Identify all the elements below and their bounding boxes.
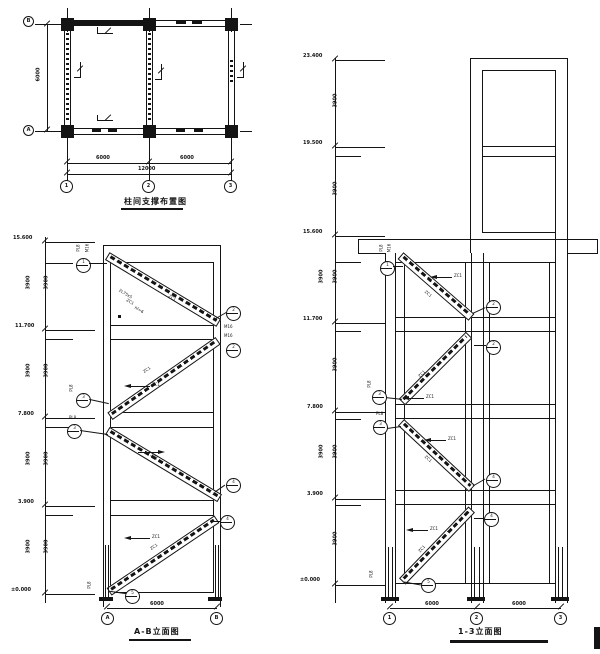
beam-line: [110, 412, 214, 413]
leader-line: [474, 345, 486, 346]
diagonal-brace: [398, 419, 475, 492]
column-section: [61, 125, 74, 138]
dim-text: 3900: [26, 364, 31, 378]
beam-line: [395, 404, 555, 405]
detail-callout: 2: [226, 343, 241, 358]
level-label: 11.700: [15, 324, 34, 329]
leader-label: ZC1: [454, 274, 462, 278]
anchor-line: [392, 547, 393, 597]
callout-line: [422, 585, 433, 586]
dim-text: 3900: [333, 358, 338, 372]
callout-num: 3: [374, 422, 387, 426]
beam-line: [395, 418, 555, 419]
brace-dash: [110, 255, 218, 321]
level-tick: [335, 236, 385, 237]
anchor-line: [105, 545, 106, 597]
dim-text: 6000: [512, 602, 526, 607]
anchor-line: [558, 547, 559, 597]
level-label: 3.900: [18, 500, 34, 505]
column-line: [549, 262, 550, 583]
column-line: [555, 70, 556, 232]
anchor-line: [479, 547, 480, 597]
column-line: [471, 253, 472, 603]
column-line: [555, 232, 556, 603]
detail-callout: 3: [76, 393, 91, 408]
node-note: ZC1: [126, 298, 135, 306]
base-plate: [99, 597, 113, 601]
level-tick: [335, 323, 385, 324]
callout-line: [126, 596, 137, 597]
beam-line: [110, 427, 214, 428]
level-tick: [45, 515, 73, 516]
leader-line: [212, 521, 220, 522]
anchor-line: [215, 545, 216, 597]
detail-callout: 5: [125, 589, 140, 604]
section-mark: [74, 77, 81, 78]
brace-texture: [230, 60, 233, 82]
level-tick: [45, 263, 73, 264]
callout-num: 2: [487, 302, 500, 306]
level-tick: [335, 156, 361, 157]
leader-label: ZC1: [430, 527, 438, 531]
level-label: ±0.000: [11, 588, 31, 593]
title-underline: [129, 639, 191, 641]
diagonal-brace: [107, 337, 220, 420]
brace-label: ZC1: [424, 290, 433, 298]
beam-line: [395, 317, 555, 318]
dim-text: 3900: [26, 540, 31, 554]
callout-num: 4: [485, 514, 498, 518]
leader-line: [89, 399, 109, 404]
detail-tag: PL8: [69, 416, 76, 420]
base-plate: [381, 597, 399, 601]
detail-tag: M16: [85, 244, 89, 253]
detail-tag: PL8: [70, 384, 74, 391]
callout-num: 5: [422, 580, 435, 584]
level-tick: [335, 262, 361, 263]
detail-callout: 4: [220, 515, 235, 530]
tick: [558, 603, 564, 609]
brace-label: ZC1: [143, 366, 152, 374]
grid-bubble: A: [101, 612, 114, 625]
detail-tag: PL8: [376, 412, 383, 416]
dim-text: 3900: [26, 452, 31, 466]
leader-line: [412, 530, 428, 531]
anchor-line: [388, 547, 389, 597]
callout-line: [381, 268, 392, 269]
column-section: [225, 18, 238, 31]
dim-text: 3900: [333, 445, 338, 459]
callout-line: [485, 519, 496, 520]
line: [156, 128, 225, 129]
line: [228, 31, 229, 125]
level-tick: [45, 330, 95, 331]
grid-label: A: [24, 128, 33, 133]
line: [64, 31, 65, 125]
beam-line: [110, 515, 214, 516]
grid-bubble: 1: [383, 612, 396, 625]
leader-label: ZC1: [448, 437, 456, 441]
level-label: ±0.000: [300, 578, 320, 583]
brace-dash: [402, 335, 467, 400]
level-label: 7.800: [18, 412, 34, 417]
callout-line: [487, 347, 498, 348]
detail-callout: 5: [421, 578, 436, 593]
detail-tag: PL8: [77, 244, 81, 251]
level-tick: [45, 594, 95, 595]
leader-label: ZC1: [426, 395, 434, 399]
callout-num: 2: [487, 342, 500, 346]
level-tick: [335, 505, 361, 506]
callout-line: [68, 431, 79, 432]
callout-line: [221, 522, 232, 523]
dim-line: [47, 24, 48, 131]
brace-dash: [110, 519, 214, 591]
leader-line: [393, 266, 403, 267]
column-section: [61, 18, 74, 31]
level-tick: [335, 147, 385, 148]
line: [70, 31, 71, 125]
grid-label: 2: [471, 616, 482, 621]
grid-bubble: 1: [60, 180, 73, 193]
base-plate: [208, 597, 222, 601]
line: [234, 31, 235, 125]
callout-line: [227, 485, 238, 486]
brace-dash: [110, 430, 219, 497]
beam-dash: [176, 21, 186, 24]
dim-text: 3900: [319, 270, 324, 284]
callout-line: [374, 427, 385, 428]
beam-line: [597, 239, 598, 253]
beam-line: [358, 239, 359, 253]
beam-line: [358, 239, 597, 240]
dim-text: 3900: [333, 94, 338, 108]
dim-line: [107, 608, 217, 609]
dim-text: 6000: [180, 156, 194, 161]
leader-line: [474, 518, 484, 519]
beam-line: [567, 253, 598, 254]
section-mark: [97, 27, 98, 33]
beam-dash: [176, 129, 185, 132]
anchor-line: [474, 547, 475, 597]
line: [156, 134, 225, 135]
column-line: [567, 58, 568, 253]
level-label: 23.400: [303, 54, 322, 59]
callout-line: [487, 307, 498, 308]
dim-text: 3900: [44, 452, 49, 466]
brace-dash: [403, 423, 472, 487]
leader-arrow: [158, 450, 165, 454]
node-note: hf=6: [134, 306, 144, 314]
dot: [118, 315, 121, 318]
grid-bubble: 3: [554, 612, 567, 625]
anchor-line: [562, 547, 563, 597]
detail-tag: M16: [224, 334, 233, 338]
section-mark: [243, 62, 244, 78]
level-tick: [335, 499, 385, 500]
leader-label: ZC1: [152, 535, 160, 539]
dim-text: 6000: [150, 602, 164, 607]
grid-label: 3: [555, 616, 566, 621]
brace-dash: [403, 510, 470, 580]
dim-text: 3900: [44, 364, 49, 378]
beam-dash: [194, 129, 203, 132]
column-line: [483, 253, 484, 603]
callout-num: 5: [126, 591, 139, 595]
elevation-title: 1-3立面图: [458, 628, 502, 636]
detail-tag: M16: [387, 244, 391, 253]
dim-text: 3900: [333, 270, 338, 284]
column-line: [470, 58, 471, 253]
leader-line: [216, 312, 227, 319]
callout-num: 2: [227, 308, 240, 312]
diagonal-brace: [399, 506, 475, 584]
level-tick: [335, 419, 361, 420]
brace-texture: [66, 33, 69, 123]
diagonal-brace: [399, 332, 473, 406]
leader-label: ZC1: [152, 383, 160, 387]
beam-line: [395, 331, 555, 332]
beam-line: [470, 58, 568, 59]
dim-line: [67, 174, 231, 175]
detail-callout: 2: [486, 340, 501, 355]
grid-label: 3: [225, 184, 236, 189]
dim-text: 6000: [36, 68, 41, 82]
level-tick: [45, 506, 95, 507]
elevation-title: A-B立面图: [134, 628, 180, 636]
title-underline: [450, 640, 548, 643]
detail-callout: 3: [372, 390, 387, 405]
base-plate: [551, 597, 569, 601]
plan-title: 柱间支撑布置图: [124, 198, 187, 206]
grid-label: 1: [384, 616, 395, 621]
line: [156, 26, 225, 27]
dim-text: 3900: [319, 445, 324, 459]
level-tick: [335, 331, 361, 332]
grid-label: B: [211, 616, 222, 621]
beam-dash: [192, 21, 202, 24]
level-label: 15.600: [13, 236, 32, 241]
beam-line: [482, 156, 556, 157]
column-section: [143, 125, 156, 138]
level-label: 19.500: [303, 141, 322, 146]
callout-num: 4: [221, 517, 234, 521]
level-label: 3.900: [307, 492, 323, 497]
drawing-sheet: 6000 6000 6000 12000 B A 1 2 3 柱间支撑布置图: [0, 0, 600, 654]
brace-texture: [148, 33, 151, 123]
column-line: [482, 70, 483, 232]
leader-line: [130, 386, 150, 387]
callout-line: [77, 265, 88, 266]
line: [156, 20, 225, 21]
beam: [74, 20, 143, 26]
level-tick: [335, 585, 385, 586]
dim-text: 3900: [333, 182, 338, 196]
detail-callout: 4: [486, 473, 501, 488]
detail-tag: PL8: [370, 570, 374, 577]
detail-tag: PL8: [380, 244, 384, 251]
leader-line: [138, 452, 158, 453]
callout-num: 3: [373, 392, 386, 396]
beam-line: [110, 500, 214, 501]
line: [152, 31, 153, 125]
grid-label: 1: [61, 184, 72, 189]
column-line: [395, 253, 396, 603]
leader-line: [130, 538, 150, 539]
beam-line: [110, 339, 214, 340]
grid-bubble: 3: [224, 180, 237, 193]
beam-line: [395, 504, 555, 505]
base-plate: [467, 597, 485, 601]
grid-bubble: 2: [142, 180, 155, 193]
column-line: [567, 253, 568, 603]
beam-line: [358, 253, 386, 254]
detail-callout: 4: [484, 512, 499, 527]
callout-line: [227, 350, 238, 351]
section-mark: [237, 77, 244, 78]
grid-bubble: A: [23, 125, 34, 136]
column-line: [103, 245, 104, 607]
section-mark: [161, 64, 162, 80]
brace-dash: [111, 340, 216, 415]
title-underline: [121, 208, 183, 210]
section-mark: [155, 79, 162, 80]
dim-text: 3900: [26, 276, 31, 290]
beam-line: [482, 70, 556, 71]
callout-line: [227, 313, 238, 314]
beam-dash: [108, 129, 117, 132]
section-mark: [80, 62, 81, 78]
dim-text: 6000: [96, 156, 110, 161]
dim-text: 3900: [44, 540, 49, 554]
grid-label: 2: [143, 184, 154, 189]
detail-tag: M16: [224, 325, 233, 329]
dim-text: 3900: [333, 532, 338, 546]
beam-line: [482, 232, 556, 233]
callout-num: 3: [77, 395, 90, 399]
column-line: [220, 245, 221, 607]
level-tick: [45, 339, 73, 340]
detail-callout: 4: [226, 478, 241, 493]
section-mark: [97, 115, 98, 121]
detail-tag: PL8: [88, 581, 92, 588]
callout-num: 3: [68, 426, 81, 430]
level-label: 15.600: [303, 230, 322, 235]
leader-line: [89, 263, 107, 264]
dim-text: 12000: [138, 167, 155, 172]
grid-label: B: [24, 19, 33, 24]
callout-num: 2: [227, 345, 240, 349]
brace-dash: [402, 256, 470, 316]
detail-callout: 2: [486, 300, 501, 315]
beam-dash: [92, 129, 101, 132]
anchor-line: [108, 545, 109, 597]
line: [146, 31, 147, 125]
detail-tag: PL8: [368, 380, 372, 387]
line: [35, 24, 61, 25]
grid-bubble: B: [210, 612, 223, 625]
dim-text: 3900: [44, 276, 49, 290]
level-label: 7.800: [307, 405, 323, 410]
beam-line: [395, 490, 555, 491]
brace-label: ZC1: [150, 543, 159, 551]
callout-num: 4: [487, 475, 500, 479]
grid-label: A: [102, 616, 113, 621]
line: [74, 134, 143, 135]
dim-text: 6000: [425, 602, 439, 607]
callout-line: [373, 397, 384, 398]
level-label: 11.700: [303, 317, 322, 322]
detail-callout: 1: [380, 261, 395, 276]
beam-line: [395, 262, 555, 263]
detail-callout: 2: [226, 306, 241, 321]
beam-line: [482, 146, 556, 147]
detail-callout: 3: [373, 420, 388, 435]
detail-callout: 1: [76, 258, 91, 273]
sheet-edge-mark: [594, 627, 600, 649]
grid-bubble: 2: [470, 612, 483, 625]
line: [240, 131, 252, 132]
beam-line: [110, 325, 214, 326]
level-tick: [335, 60, 385, 61]
dim-line: [67, 163, 231, 164]
leader-line: [430, 440, 446, 441]
line: [35, 131, 61, 132]
line: [240, 24, 252, 25]
column-section: [225, 125, 238, 138]
callout-line: [487, 480, 498, 481]
column-section: [143, 18, 156, 31]
grid-bubble: B: [23, 16, 34, 27]
diagonal-brace: [107, 515, 220, 595]
callout-num: 4: [227, 480, 240, 484]
beam-line: [103, 245, 221, 246]
diagonal-brace: [105, 427, 222, 502]
anchor-line: [218, 545, 219, 597]
leader-line: [408, 398, 424, 399]
callout-line: [77, 400, 88, 401]
leader-line: [436, 277, 452, 278]
detail-callout: 3: [67, 424, 82, 439]
